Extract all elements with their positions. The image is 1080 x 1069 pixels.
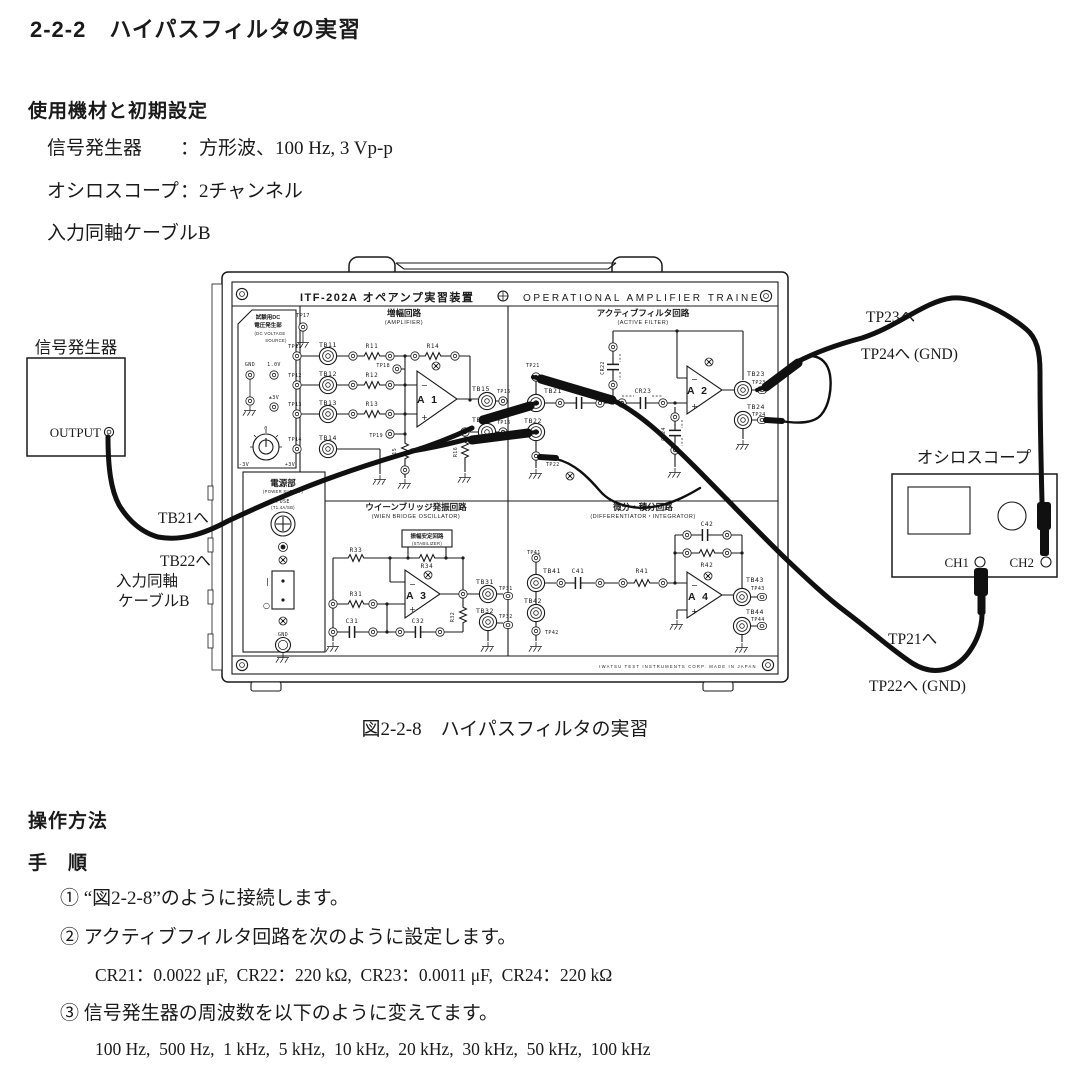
power-lamp: [279, 543, 288, 552]
oscilloscope-title: オシロスコープ: [917, 448, 1032, 467]
tp17-label: TP17: [296, 313, 310, 319]
oscilloscope-screen: [908, 487, 970, 534]
trainer-side-strip: [208, 284, 222, 670]
tb14-terminal: [319, 440, 336, 457]
tp32-label: TP32: [499, 614, 513, 620]
tp42-terminal: [532, 627, 540, 635]
tp12-terminal: [293, 381, 301, 389]
cr23-label: CR23: [635, 388, 652, 395]
to-tp24-label: TP24へ (GND): [861, 346, 958, 363]
diff-title-en: (DIFFERENTIATOR・INTEGRATOR): [590, 514, 695, 520]
fuse-rating-label: (T1.4A/SB): [271, 505, 295, 510]
to-tp23-label: TP23へ: [866, 309, 915, 326]
stabilizer-label-en: (STABILIZER): [412, 541, 442, 546]
tp11-label: TP11: [288, 344, 302, 350]
r32-label: R32: [450, 612, 456, 622]
equipment-item-1-value: ：方形波、100 Hz, 3 Vp-p: [180, 138, 393, 159]
tb15-terminal: [478, 392, 495, 409]
trainer-english-title: OPERATIONAL AMPLIFIER TRAINER: [523, 293, 770, 304]
svg-text:+: +: [691, 607, 698, 616]
oscilloscope-knob: [998, 502, 1026, 530]
tb15-label: TB15: [472, 385, 490, 393]
corner-screw-icon: [236, 659, 247, 670]
power-switch: [272, 571, 294, 609]
dc-title-2: 電圧発生部: [254, 321, 282, 329]
cr22-label: CR22: [600, 361, 606, 375]
tp43-label: TP43: [751, 586, 765, 592]
c31-label: C31: [346, 618, 359, 625]
svg-text:−: −: [691, 581, 698, 590]
filter-title: アクティブフィルタ回路: [597, 308, 690, 318]
tb11-terminal: [319, 347, 336, 364]
screw-icon: [704, 572, 712, 580]
equipment-item-2-label: オシロスコープ: [47, 176, 180, 203]
a2-label: A 2: [687, 385, 709, 397]
equipment-item-2-value: ：2チャンネル: [180, 181, 303, 202]
manufacturer-label: IWATSU TEST INSTRUMENTS CORP. MADE IN JA…: [599, 664, 756, 669]
tp11-terminal: [293, 352, 301, 360]
screw-icon: [424, 571, 432, 579]
knob-zero-label: 0: [264, 426, 267, 432]
1v-label: 1.0V: [267, 362, 281, 368]
ch1-label: CH1: [944, 555, 969, 570]
svg-text:+: +: [691, 402, 698, 411]
screw-icon: [498, 291, 508, 301]
cr22-top-terminal: [609, 343, 617, 351]
trainer-model-title: ITF-202A オペアンプ実習装置: [300, 290, 474, 304]
figure-caption: 図2-2-8 ハイパスフィルタの実習: [0, 714, 1010, 741]
c41-label: C41: [572, 568, 585, 575]
a4-label: A 4: [688, 591, 710, 603]
step-3: ③ 信号発生器の周波数を以下のように変えてます。: [60, 998, 498, 1025]
tb23-terminal: [734, 381, 751, 398]
ch1-terminal: [975, 557, 985, 567]
trainer-feet: [251, 682, 733, 691]
a3-label: A 3: [406, 590, 428, 602]
equipment-item-1-label: 信号発生器: [47, 133, 180, 160]
r12-label: R12: [366, 372, 379, 379]
tb43-label: TB43: [746, 576, 764, 584]
step-3-detail: 100 Hz, 500 Hz, 1 kHz, 5 kHz, 10 kHz, 20…: [95, 1039, 651, 1060]
tp14-label: TP14: [288, 437, 302, 443]
a1-label: A 1: [417, 394, 439, 406]
tp16-label: TP16: [497, 420, 511, 426]
cr22-bottom-terminal: [609, 381, 617, 389]
knob-minus3-label: -3V: [239, 462, 249, 468]
tp41-terminal: [532, 554, 540, 562]
tp15-terminal: [499, 397, 507, 405]
r13-label: R13: [366, 401, 379, 408]
amp-title-en: (AMPLIFIER): [385, 320, 423, 326]
stabilizer-label: 振幅安定回路: [410, 532, 444, 540]
tb44-terminal: [733, 617, 750, 634]
screw-icon: [432, 362, 440, 370]
ch2-label: CH2: [1009, 555, 1034, 570]
dc-title-4: SOURCE): [265, 338, 287, 343]
tb31-label: TB31: [476, 578, 494, 586]
tp18-label: TP18: [376, 363, 390, 369]
oscilloscope: オシロスコープ CH1 CH2: [892, 448, 1057, 577]
svg-text:+: +: [421, 413, 428, 422]
screw-icon: [279, 617, 287, 625]
operation-heading: 操作方法: [28, 806, 108, 833]
corner-screw-icon: [762, 659, 773, 670]
step-2: ② アクティブフィルタ回路を次のように設定します。: [60, 922, 516, 949]
tb42-terminal: [527, 604, 544, 621]
ch2-probe-cable: [797, 298, 1042, 502]
amp-title: 増幅回路: [387, 308, 422, 318]
corner-screw-icon: [236, 288, 247, 299]
svg-text:−: −: [421, 381, 428, 390]
tp31-label: TP31: [499, 586, 513, 592]
c32-label: C32: [412, 618, 425, 625]
r33-label: R33: [350, 547, 363, 554]
tb12-terminal: [319, 376, 336, 393]
gnd-label: GND: [245, 362, 255, 368]
gnd-terminal-2: [246, 397, 254, 405]
r41-label: R41: [636, 568, 649, 575]
tb31-terminal: [479, 585, 496, 602]
tp21-label: TP21: [526, 363, 540, 369]
fuse-holder: [271, 512, 295, 536]
switch-on-label: |: [266, 577, 269, 586]
tb24-terminal: [734, 411, 751, 428]
switch-off-label: ○: [263, 601, 270, 610]
tb13-terminal: [319, 405, 336, 422]
tp13-terminal: [293, 410, 301, 418]
equipment-item-2: オシロスコープ：2チャンネル: [47, 176, 303, 203]
tp14-terminal: [293, 445, 301, 453]
tp44-label: TP44: [751, 617, 765, 623]
tp19-label: TP19: [369, 433, 383, 439]
c42-label: C42: [701, 521, 714, 528]
dc-title-1: 試験用DC: [256, 313, 280, 321]
pm3v-terminal: [270, 403, 278, 411]
to-tp21-label: TP21へ: [888, 631, 937, 648]
to-tp22-label: TP22へ (GND): [869, 678, 966, 695]
r14-label: R14: [427, 343, 440, 350]
screw-icon: [705, 358, 713, 366]
wien-title-en: (WIEN BRIDGE OSCILLATOR): [372, 514, 461, 520]
tp43-terminal: [758, 594, 767, 601]
procedure-heading: 手 順: [28, 848, 88, 875]
tp15-label: TP15: [497, 389, 511, 395]
tp22-ground-plug: [540, 457, 556, 458]
svg-text:−: −: [691, 375, 698, 384]
tb23-label: TB23: [747, 370, 765, 378]
tb41-label: TB41: [543, 567, 561, 575]
tp13-label: TP13: [288, 402, 302, 408]
power-supply-section: 電源部 (POWER SUPPLY) FUSE (T1.4A/SB) | ○: [243, 472, 325, 663]
corner-screw-icon: [760, 290, 771, 301]
filter-title-en: (ACTIVE FILTER): [617, 320, 668, 326]
tb42-label: TB42: [524, 597, 542, 605]
r16-label: R16: [453, 447, 459, 457]
coax-label-2: ケーブルB: [118, 591, 189, 610]
equipment-item-3: 入力同軸ケーブルB: [47, 218, 211, 245]
r31-left-terminal: [329, 600, 337, 608]
screw-icon: [566, 472, 574, 480]
r34-label: R34: [421, 563, 434, 570]
tp32-terminal: [504, 622, 513, 629]
tp18-terminal: [393, 365, 401, 373]
wien-title: ウイーンブリッジ発振回路: [365, 502, 467, 512]
r42-label: R42: [701, 562, 714, 569]
ch2-terminal: [1041, 557, 1051, 567]
tb24-label: TB24: [747, 403, 765, 411]
equipment-heading: 使用機材と初期設定: [28, 96, 208, 123]
equipment-item-3-label: 入力同軸ケーブルB: [47, 223, 211, 244]
output-label: OUTPUT: [50, 425, 101, 440]
screw-icon: [279, 556, 287, 564]
tb41-terminal: [527, 574, 544, 591]
r31-label: R31: [350, 591, 363, 598]
page-title: 2-2-2 ハイパスフィルタの実習: [30, 12, 361, 44]
1v-terminal: [270, 371, 278, 379]
step-2-detail: CR21：0.0022 μF, CR22：220 kΩ, CR23：0.0011…: [95, 962, 612, 987]
step-1: ① “図2-2-8”のように接続します。: [60, 883, 349, 910]
equipment-item-1: 信号発生器：方形波、100 Hz, 3 Vp-p: [47, 133, 393, 160]
manual-page: 2-2-2 ハイパスフィルタの実習 使用機材と初期設定 信号発生器：方形波、10…: [0, 0, 1080, 1069]
to-tb22-label: TB22へ: [160, 553, 211, 570]
to-tb21-label: TB21へ: [158, 510, 209, 527]
tp17-terminal: [299, 323, 307, 331]
coax-label-1: 入力同軸: [116, 572, 178, 590]
r11-label: R11: [366, 343, 379, 350]
tp42-label: TP42: [545, 630, 559, 636]
pm3v-label: ±3V: [269, 395, 279, 401]
cr24-top-terminal: [671, 413, 679, 421]
svg-text:−: −: [409, 580, 416, 589]
ch1-connector: [974, 568, 988, 615]
dc-title-3: (DC VOLTAGE: [254, 331, 285, 336]
tp44-terminal: [758, 623, 767, 630]
tp22-label: TP22: [546, 462, 560, 468]
knob-plus3-label: +3V: [285, 462, 295, 468]
tp19-terminal: [386, 430, 394, 438]
svg-text:+: +: [409, 605, 416, 614]
figure-2-2-8-diagram: 信号発生器 OUTPUT: [0, 248, 1080, 708]
tb32-terminal: [479, 613, 496, 630]
power-title: 電源部: [270, 478, 296, 488]
tb44-label: TB44: [746, 608, 764, 616]
tp31-terminal: [504, 593, 513, 600]
tb43-terminal: [733, 588, 750, 605]
signal-generator-title: 信号発生器: [35, 338, 118, 357]
gnd-terminal: [246, 371, 254, 379]
tp12-label: TP12: [288, 373, 302, 379]
